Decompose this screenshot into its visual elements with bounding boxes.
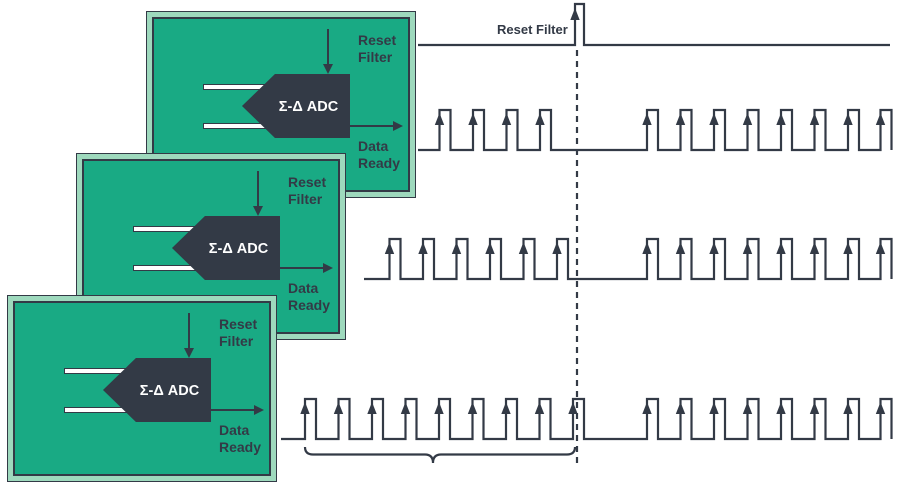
reset-filter-arrowhead-icon bbox=[323, 64, 333, 74]
pulse-up-arrowhead-icon bbox=[367, 402, 376, 414]
pulse-up-arrowhead-icon bbox=[843, 402, 852, 414]
pulse-up-arrowhead-icon bbox=[501, 402, 510, 414]
reset-pulse-arrowhead-icon bbox=[570, 8, 579, 20]
pulse-up-arrowhead-icon bbox=[810, 242, 819, 254]
reset-filter-label: ResetFilter bbox=[358, 32, 396, 66]
pulse-up-arrowhead-icon bbox=[434, 402, 443, 414]
data-ready-arrow-icon bbox=[211, 409, 255, 411]
pulse-up-arrowhead-icon bbox=[676, 402, 685, 414]
pulse-up-arrowhead-icon bbox=[485, 242, 494, 254]
pulse-up-arrowhead-icon bbox=[385, 242, 394, 254]
reset-filter-label: ResetFilter bbox=[219, 316, 257, 350]
pulse-up-arrowhead-icon bbox=[535, 402, 544, 414]
pulse-up-arrowhead-icon bbox=[519, 242, 528, 254]
pulse-up-arrowhead-icon bbox=[334, 402, 343, 414]
data-ready-label: DataReady bbox=[219, 422, 261, 456]
pulse-up-arrowhead-icon bbox=[709, 402, 718, 414]
pulse-up-arrowhead-icon bbox=[642, 402, 651, 414]
adc-card-3-face: ResetFilter Σ-Δ ADC DataReady bbox=[13, 301, 271, 476]
pulse-up-arrowhead-icon bbox=[401, 402, 410, 414]
data-ready-trace-1 bbox=[418, 110, 892, 150]
pulse-up-arrowhead-icon bbox=[300, 402, 309, 414]
adc-block-label: Σ-Δ ADC bbox=[128, 383, 211, 399]
data-ready-label: DataReady bbox=[358, 138, 400, 172]
pulse-up-arrowhead-icon bbox=[810, 402, 819, 414]
pulse-up-arrowhead-icon bbox=[743, 402, 752, 414]
pulse-up-arrowhead-icon bbox=[776, 242, 785, 254]
pulse-up-arrowhead-icon bbox=[776, 113, 785, 125]
data-ready-label: DataReady bbox=[288, 280, 330, 314]
reset-filter-trace-label: Reset Filter bbox=[497, 22, 568, 37]
pulse-up-arrowhead-icon bbox=[876, 402, 885, 414]
pulse-up-arrowhead-icon bbox=[709, 113, 718, 125]
reset-filter-label: ResetFilter bbox=[288, 174, 326, 208]
pulse-up-arrowhead-icon bbox=[552, 242, 561, 254]
pulse-up-arrowhead-icon bbox=[676, 242, 685, 254]
pulse-up-arrowhead-icon bbox=[843, 242, 852, 254]
data-ready-arrowhead-icon bbox=[393, 121, 403, 131]
pulse-up-arrowhead-icon bbox=[709, 242, 718, 254]
pulse-up-arrowhead-icon bbox=[843, 113, 852, 125]
reset-filter-arrowhead-icon bbox=[184, 348, 194, 358]
pulse-up-arrowhead-icon bbox=[776, 402, 785, 414]
pulse-up-arrowhead-icon bbox=[743, 242, 752, 254]
adc-block-label: Σ-Δ ADC bbox=[267, 99, 350, 115]
pulse-up-arrowhead-icon bbox=[468, 113, 477, 125]
pulse-up-arrowhead-icon bbox=[468, 402, 477, 414]
reset-filter-arrowhead-icon bbox=[253, 206, 263, 216]
pulse-up-arrowhead-icon bbox=[435, 113, 444, 125]
adc-block-label: Σ-Δ ADC bbox=[197, 241, 280, 257]
data-ready-arrowhead-icon bbox=[254, 405, 264, 415]
pulse-up-arrowhead-icon bbox=[502, 113, 511, 125]
pulse-up-arrowhead-icon bbox=[876, 113, 885, 125]
pulse-up-arrowhead-icon bbox=[876, 242, 885, 254]
pulse-up-arrowhead-icon bbox=[452, 242, 461, 254]
data-ready-trace-2 bbox=[364, 239, 892, 279]
pulse-up-arrowhead-icon bbox=[642, 242, 651, 254]
pulse-up-arrowhead-icon bbox=[743, 113, 752, 125]
reset-filter-arrow-icon bbox=[188, 313, 190, 349]
pulse-up-arrowhead-icon bbox=[535, 113, 544, 125]
pulse-up-arrowhead-icon bbox=[642, 113, 651, 125]
reset-filter-arrow-icon bbox=[257, 171, 259, 207]
pulse-up-arrowhead-icon bbox=[676, 113, 685, 125]
data-ready-arrowhead-icon bbox=[323, 263, 333, 273]
data-ready-arrow-icon bbox=[280, 267, 324, 269]
reset-filter-trace bbox=[418, 4, 890, 45]
data-ready-arrow-icon bbox=[350, 125, 394, 127]
interval-brace bbox=[305, 447, 575, 463]
pulse-up-arrowhead-icon bbox=[418, 242, 427, 254]
adc-card-3: ResetFilter Σ-Δ ADC DataReady bbox=[7, 295, 277, 482]
pulse-up-arrowhead-icon bbox=[810, 113, 819, 125]
reset-filter-arrow-icon bbox=[327, 29, 329, 65]
sigma-delta-adc-sync-diagram: Reset Filter ResetFilter Σ-Δ ADC DataRea… bbox=[0, 0, 900, 489]
